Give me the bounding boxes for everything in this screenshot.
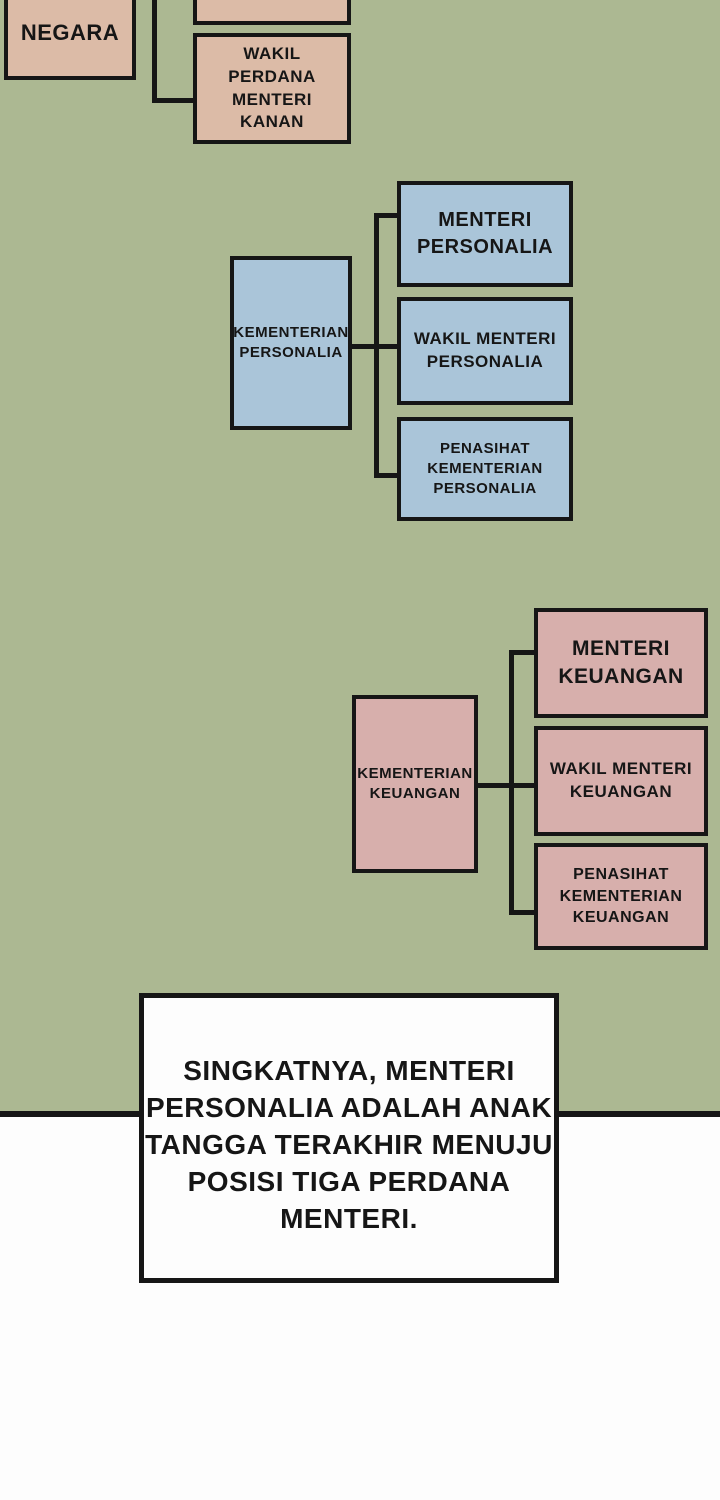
- wakil-menteri-personalia-box: WAKIL MENTERI PERSONALIA: [397, 297, 573, 405]
- keuangan-connector-stub-middle: [475, 783, 534, 788]
- keuangan-connector-stub-bottom: [509, 910, 534, 915]
- org-chart-panel: NEGARA WAKIL PERDANA MENTERI KANAN KEMEN…: [0, 0, 720, 1117]
- kementerian-keuangan-label: KEMENTERIAN KEUANGAN: [357, 764, 473, 805]
- menteri-personalia-box: MENTERI PERSONALIA: [397, 181, 573, 287]
- keuangan-connector-stub-top: [509, 650, 534, 655]
- narration-line: POSISI TIGA PERDANA: [188, 1163, 511, 1200]
- connector-top-horizontal: [152, 98, 197, 103]
- narration-box: SINGKATNYA, MENTERI PERSONALIA ADALAH AN…: [139, 993, 559, 1283]
- menteri-keuangan-box: MENTERI KEUANGAN: [534, 608, 708, 718]
- menteri-personalia-label: MENTERI PERSONALIA: [407, 207, 563, 261]
- personalia-connector-stub-bottom: [374, 473, 397, 478]
- kementerian-personalia-box: KEMENTERIAN PERSONALIA: [230, 256, 352, 430]
- connector-top-vertical: [152, 0, 157, 103]
- wakil-menteri-keuangan-label: WAKIL MENTERI KEUANGAN: [544, 758, 698, 804]
- cropped-top-box: [193, 0, 351, 25]
- penasihat-kementerian-keuangan-label: PENASIHAT KEMENTERIAN KEUANGAN: [544, 864, 698, 929]
- narration-line: SINGKATNYA, MENTERI: [183, 1052, 515, 1089]
- menteri-keuangan-label: MENTERI KEUANGAN: [544, 635, 698, 692]
- negara-box: NEGARA: [4, 0, 136, 80]
- wakil-menteri-personalia-label: WAKIL MENTERI PERSONALIA: [407, 328, 563, 374]
- narration-line: MENTERI.: [280, 1200, 418, 1237]
- personalia-connector-stub-middle: [352, 344, 397, 349]
- narration-line: TANGGA TERAKHIR MENUJU: [145, 1126, 553, 1163]
- comic-panel: NEGARA WAKIL PERDANA MENTERI KANAN KEMEN…: [0, 0, 720, 1500]
- penasihat-kementerian-keuangan-box: PENASIHAT KEMENTERIAN KEUANGAN: [534, 843, 708, 950]
- penasihat-kementerian-personalia-label: PENASIHAT KEMENTERIAN PERSONALIA: [407, 439, 563, 500]
- narration-line: PERSONALIA ADALAH ANAK: [146, 1089, 552, 1126]
- wakil-perdana-menteri-kanan-box: WAKIL PERDANA MENTERI KANAN: [193, 33, 351, 144]
- wakil-menteri-keuangan-box: WAKIL MENTERI KEUANGAN: [534, 726, 708, 836]
- negara-label: NEGARA: [21, 18, 119, 48]
- wakil-perdana-menteri-kanan-label: WAKIL PERDANA MENTERI KANAN: [203, 43, 341, 135]
- kementerian-personalia-label: KEMENTERIAN PERSONALIA: [233, 323, 349, 364]
- kementerian-keuangan-box: KEMENTERIAN KEUANGAN: [352, 695, 478, 873]
- penasihat-kementerian-personalia-box: PENASIHAT KEMENTERIAN PERSONALIA: [397, 417, 573, 521]
- personalia-connector-stub-top: [374, 213, 397, 218]
